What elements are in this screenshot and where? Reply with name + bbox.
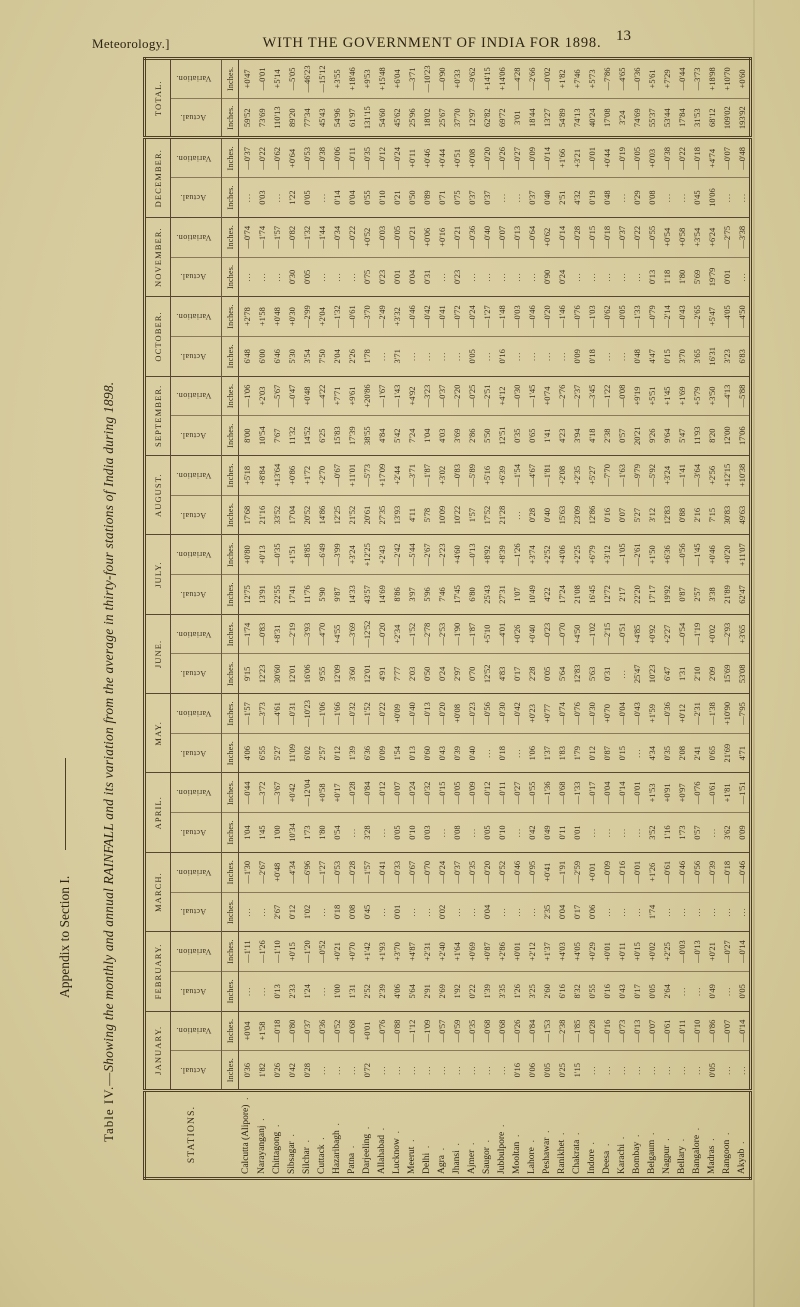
actual-value-cell: 0'05 — [704, 1051, 719, 1091]
variation-value-cell: —0'88 — [389, 1011, 404, 1051]
variation-value-cell: —1'32 — [299, 217, 314, 257]
actual-value-cell: ... — [344, 813, 359, 853]
actual-value-cell: 0'36 — [239, 1051, 255, 1091]
actual-value-cell: 2'28 — [524, 654, 539, 694]
inches-unit-label: Inches. — [222, 733, 239, 773]
inches-unit-label: Inches. — [222, 178, 239, 218]
variation-value-cell: +0'01 — [584, 852, 599, 892]
station-row: Bombay...—0'130'17+0'15...—0'01...—0'01.… — [629, 59, 644, 1179]
actual-value-cell: 20'52 — [299, 495, 314, 535]
actual-value-cell: 8'86 — [389, 575, 404, 615]
actual-value-cell: 17'08 — [599, 98, 614, 138]
actual-value-cell: 15'69 — [719, 654, 734, 694]
actual-value-cell: 0'05 — [464, 336, 479, 376]
variation-value-cell: +15'48 — [374, 59, 389, 99]
actual-value-cell: 0'65 — [704, 733, 719, 773]
actual-value-cell: ... — [599, 813, 614, 853]
actual-value-cell: 74'13 — [569, 98, 584, 138]
actual-value-cell: 0'10 — [374, 178, 389, 218]
variation-value-cell: —4'70 — [314, 614, 329, 654]
station-name: Hazaribagh — [329, 1091, 344, 1179]
variation-value-cell: —7'70 — [599, 456, 614, 496]
station-name-text: Delhi — [422, 1146, 432, 1174]
actual-value-cell: 3'60 — [344, 654, 359, 694]
variation-value-cell: —0'38 — [659, 138, 674, 178]
variation-value-cell: —1'45 — [524, 376, 539, 416]
actual-value-cell: 10'34 — [284, 813, 299, 853]
actual-value-cell: 5'78 — [419, 495, 434, 535]
actual-value-cell: 6'55 — [254, 733, 269, 773]
variation-value-cell: —0'41 — [434, 297, 449, 337]
variation-value-cell: —4'22 — [314, 376, 329, 416]
variation-value-cell: —0'14 — [614, 773, 629, 813]
variation-value-cell: +6'39 — [494, 456, 509, 496]
variation-value-cell: +3'74 — [524, 535, 539, 575]
variation-value-cell: +0'23 — [524, 694, 539, 734]
variation-value-cell: —5'92 — [644, 456, 659, 496]
actual-value-cell: 4'32 — [569, 178, 584, 218]
actual-value-cell: 0'01 — [389, 892, 404, 932]
variation-value-cell: —0'56 — [689, 852, 704, 892]
station-name: Delhi — [419, 1091, 434, 1179]
variation-value-cell: —4'34 — [284, 852, 299, 892]
actual-value-cell: 12'09 — [329, 654, 344, 694]
variation-value-cell: +1'93 — [374, 932, 389, 972]
appendix-side-note-text: Appendix to Section I. — [57, 876, 72, 998]
actual-subheader: Actual. — [171, 495, 222, 535]
actual-subheader: Actual. — [171, 733, 222, 773]
actual-value-cell: 3'71 — [389, 336, 404, 376]
station-name-text: Belgaum — [647, 1133, 657, 1174]
variation-value-cell: —2'66 — [524, 59, 539, 99]
variation-value-cell: —0'46 — [674, 852, 689, 892]
variation-subheader: Variation. — [171, 59, 222, 99]
actual-value-cell: ... — [269, 178, 284, 218]
station-name-text: Chakrata — [572, 1133, 582, 1174]
actual-value-cell: 25'43 — [479, 575, 494, 615]
variation-value-cell: —2'15 — [599, 614, 614, 654]
variation-value-cell: +10'90 — [719, 694, 734, 734]
actual-value-cell: 0'55 — [584, 971, 599, 1011]
actual-value-cell: 89'20 — [284, 98, 299, 138]
station-name: Lahore — [524, 1091, 539, 1179]
variation-value-cell: +0'08 — [464, 138, 479, 178]
variation-value-cell: —0'13 — [509, 217, 524, 257]
actual-value-cell: 5'64 — [554, 654, 569, 694]
actual-value-cell: 0'70 — [464, 654, 479, 694]
actual-value-cell: 0'08 — [344, 892, 359, 932]
actual-value-cell: 9'64 — [659, 416, 674, 456]
actual-value-cell: 3'38 — [704, 575, 719, 615]
rainfall-table: Stations.January.February.March.April.Ma… — [143, 57, 752, 1180]
actual-value-cell: 1'04 — [239, 813, 255, 853]
variation-value-cell: +4'87 — [404, 932, 419, 972]
actual-value-cell: 0'24 — [554, 257, 569, 297]
variation-value-cell: +0'33 — [449, 59, 464, 99]
variation-value-cell: —5'88 — [734, 376, 751, 416]
station-name: Nagpur — [659, 1091, 674, 1179]
variation-value-cell: —0'13 — [689, 932, 704, 972]
actual-value-cell: ... — [719, 971, 734, 1011]
station-row: Bellary...—0'11...—0'03...—0'461'73+0'97… — [674, 59, 689, 1179]
variation-value-cell: —1'32 — [329, 297, 344, 337]
actual-value-cell: 10'09 — [434, 495, 449, 535]
actual-value-cell: ... — [419, 892, 434, 932]
variation-value-cell: —1'26 — [509, 535, 524, 575]
actual-value-cell: 5'50 — [479, 416, 494, 456]
actual-value-cell: 4'18 — [584, 416, 599, 456]
variation-value-cell: —3'73 — [689, 59, 704, 99]
variation-value-cell: —0'43 — [629, 694, 644, 734]
table-title-number: Table IV.— — [101, 1072, 116, 1142]
actual-value-cell: ... — [569, 257, 584, 297]
page-number: 13 — [616, 28, 631, 45]
variation-value-cell: +9'53 — [359, 59, 374, 99]
variation-value-cell: +0'20 — [719, 535, 734, 575]
actual-value-cell: ... — [614, 336, 629, 376]
variation-value-cell: —0'84 — [524, 1011, 539, 1051]
variation-value-cell: +1'37 — [539, 932, 554, 972]
actual-value-cell: ... — [314, 178, 329, 218]
variation-value-cell: —1'90 — [449, 614, 464, 654]
variation-value-cell: +18'98 — [704, 59, 719, 99]
inches-unit-label: Inches. — [222, 456, 239, 496]
actual-value-cell: ... — [419, 336, 434, 376]
variation-value-cell: —0'68 — [479, 1011, 494, 1051]
station-name-text: Jubbulpore — [497, 1125, 507, 1174]
actual-value-cell: 0'16 — [494, 336, 509, 376]
variation-value-cell: —3'38 — [734, 217, 751, 257]
actual-subheader: Actual. — [171, 257, 222, 297]
variation-subheader-label: Variation. — [176, 233, 211, 242]
variation-value-cell: +4'92 — [404, 376, 419, 416]
actual-value-cell: 6'16 — [554, 971, 569, 1011]
actual-value-cell: 12'83 — [569, 654, 584, 694]
table-title: Table IV.—Showing the monthly and annual… — [101, 82, 117, 1142]
variation-value-cell: —0'03 — [374, 217, 389, 257]
actual-value-cell: 2'09 — [704, 654, 719, 694]
actual-value-cell: 19'92 — [659, 575, 674, 615]
station-name: Allahabad — [374, 1091, 389, 1179]
variation-value-cell: —4'65 — [614, 59, 629, 99]
variation-value-cell: —0'61 — [704, 773, 719, 813]
variation-value-cell: +0'69 — [464, 932, 479, 972]
variation-value-cell: +6'24 — [704, 217, 719, 257]
actual-value-cell: 1'45 — [254, 813, 269, 853]
variation-value-cell: —0'03 — [674, 932, 689, 972]
station-row: Cuttack...—0'36...—0'52...—1'271'80+0'58… — [314, 59, 329, 1179]
variation-value-cell: —0'22 — [629, 217, 644, 257]
actual-value-cell: ... — [689, 892, 704, 932]
variation-value-cell: +3'21 — [569, 138, 584, 178]
actual-value-cell: 1'78 — [359, 336, 374, 376]
variation-value-cell: +0'42 — [284, 773, 299, 813]
actual-value-cell: 6'48 — [239, 336, 255, 376]
variation-value-cell: —0'07 — [389, 773, 404, 813]
variation-value-cell: +1'64 — [449, 932, 464, 972]
variation-value-cell: —2'53 — [434, 614, 449, 654]
actual-value-cell: ... — [494, 257, 509, 297]
actual-value-cell: 0'15 — [614, 733, 629, 773]
variation-value-cell: —0'90 — [434, 59, 449, 99]
actual-value-cell: 30'83 — [719, 495, 734, 535]
actual-value-cell: 0'28 — [524, 495, 539, 535]
variation-value-cell: +2'27 — [659, 614, 674, 654]
variation-value-cell: —0'55 — [524, 773, 539, 813]
station-row: Lucknow...—0'884'06+3'700'01—0'330'05—0'… — [389, 59, 404, 1179]
variation-value-cell: —0'37 — [239, 138, 255, 178]
actual-value-cell: 0'11 — [554, 813, 569, 853]
actual-value-cell: ... — [314, 892, 329, 932]
variation-value-cell: —1'67 — [374, 376, 389, 416]
variation-value-cell: +0'15 — [629, 932, 644, 972]
variation-value-cell: —0'47 — [284, 376, 299, 416]
actual-value-cell: 0'87 — [674, 575, 689, 615]
actual-value-cell: 0'13 — [404, 733, 419, 773]
actual-value-cell: ... — [464, 1051, 479, 1091]
variation-value-cell: —0'46 — [404, 297, 419, 337]
actual-value-cell: 1'15 — [569, 1051, 584, 1091]
variation-value-cell: —2'59 — [569, 852, 584, 892]
variation-value-cell: —0'53 — [329, 852, 344, 892]
variation-value-cell: —12'52 — [359, 614, 374, 654]
actual-value-cell: 1'31 — [674, 654, 689, 694]
actual-subheader-label: Actual. — [180, 352, 206, 361]
variation-value-cell: —0'30 — [584, 694, 599, 734]
actual-value-cell: 16'06 — [299, 654, 314, 694]
actual-value-cell: 0'07 — [614, 495, 629, 535]
variation-value-cell: —0'52 — [314, 932, 329, 972]
actual-value-cell: ... — [239, 257, 255, 297]
actual-value-cell: 4'06 — [389, 971, 404, 1011]
actual-value-cell: 4'71 — [734, 733, 751, 773]
station-name: Narayanganj — [254, 1091, 269, 1179]
actual-value-cell: 19'79 — [704, 257, 719, 297]
variation-value-cell: —0'67 — [404, 852, 419, 892]
station-row: Sibsagar0'42—0'802'33+0'150'12—4'3410'34… — [284, 59, 299, 1179]
station-name: Cuttack — [314, 1091, 329, 1179]
actual-value-cell: 3'12 — [644, 495, 659, 535]
actual-value-cell: 33'52 — [269, 495, 284, 535]
actual-value-cell: 74'69 — [629, 98, 644, 138]
actual-value-cell: 25'96 — [404, 98, 419, 138]
variation-value-cell: +2'86 — [494, 932, 509, 972]
actual-value-cell: 0'17 — [509, 654, 524, 694]
variation-value-cell: +0'41 — [539, 852, 554, 892]
actual-value-cell: ... — [329, 1051, 344, 1091]
actual-value-cell: 2'86 — [464, 416, 479, 456]
actual-value-cell: 5'27 — [269, 733, 284, 773]
variation-value-cell: —0'07 — [494, 217, 509, 257]
station-name: Chakrata — [569, 1091, 584, 1179]
inches-unit-label: Inches. — [222, 813, 239, 853]
variation-value-cell: —0'44 — [239, 773, 255, 813]
actual-value-cell: ... — [434, 813, 449, 853]
variation-value-cell: —4'67 — [524, 456, 539, 496]
actual-value-cell: 2'03 — [404, 654, 419, 694]
variation-value-cell: +5'73 — [584, 59, 599, 99]
variation-value-cell: —0'21 — [449, 217, 464, 257]
actual-value-cell: 3'97 — [404, 575, 419, 615]
actual-value-cell: 6'83 — [734, 336, 751, 376]
station-name-text: Nagpur — [662, 1138, 672, 1174]
variation-value-cell: —1'91 — [554, 852, 569, 892]
actual-value-cell: 0'12 — [284, 892, 299, 932]
actual-value-cell: 0'48 — [599, 178, 614, 218]
actual-value-cell: 8'00 — [239, 416, 255, 456]
actual-value-cell: 14'86 — [314, 495, 329, 535]
variation-value-cell: —1'57 — [239, 694, 255, 734]
actual-value-cell: ... — [434, 1051, 449, 1091]
variation-subheader-label: Variation. — [176, 709, 211, 718]
variation-value-cell: +0'11 — [614, 932, 629, 972]
variation-value-cell: —1'11 — [239, 932, 255, 972]
variation-value-cell: —0'22 — [344, 217, 359, 257]
actual-value-cell: 0'50 — [404, 178, 419, 218]
actual-value-cell: 1'00 — [269, 813, 284, 853]
actual-value-cell: 4'47 — [644, 336, 659, 376]
inches-unit-label: Inches. — [222, 138, 239, 178]
variation-value-cell: +11'07 — [734, 535, 751, 575]
actual-value-cell: 17'39 — [344, 416, 359, 456]
actual-value-cell: 0'05 — [734, 971, 751, 1011]
actual-value-cell: 0'49 — [539, 813, 554, 853]
station-row: Ajmer...—0'350'22+0'69...—0'35...—0'090'… — [464, 59, 479, 1179]
actual-value-cell: ... — [629, 1051, 644, 1091]
inches-unit-label: Inches. — [222, 297, 239, 337]
actual-value-cell: 0'42 — [284, 1051, 299, 1091]
actual-subheader-label: Actual. — [180, 511, 206, 520]
station-name-text: Akyab — [737, 1142, 747, 1174]
variation-value-cell: —0'62 — [599, 297, 614, 337]
variation-value-cell: —0'46 — [524, 297, 539, 337]
actual-subheader: Actual. — [171, 98, 222, 138]
variation-subheader: Variation. — [171, 456, 222, 496]
actual-value-cell: 0'09 — [734, 813, 751, 853]
variation-value-cell: —0'07 — [644, 1011, 659, 1051]
actual-value-cell: 12'23 — [254, 654, 269, 694]
actual-value-cell: 2'91 — [419, 971, 434, 1011]
actual-value-cell: 2'16 — [689, 495, 704, 535]
variation-value-cell: +7'46 — [569, 59, 584, 99]
actual-value-cell: 1'18 — [659, 257, 674, 297]
actual-value-cell: 17'04 — [284, 495, 299, 535]
variation-value-cell: +3'12 — [599, 535, 614, 575]
variation-value-cell: —0'36 — [659, 694, 674, 734]
variation-value-cell: —0'19 — [614, 138, 629, 178]
actual-value-cell: 110'13 — [269, 98, 284, 138]
actual-value-cell: ... — [254, 971, 269, 1011]
variation-value-cell: —1'81 — [539, 456, 554, 496]
variation-value-cell: —2'67 — [419, 535, 434, 575]
variation-subheader: Variation. — [171, 932, 222, 972]
variation-value-cell: —0'73 — [614, 1011, 629, 1051]
variation-value-cell: —0'23 — [539, 614, 554, 654]
actual-value-cell: 17'52 — [479, 495, 494, 535]
actual-value-cell: ... — [659, 1051, 674, 1091]
station-row: Calcutta (Alipore)0'36+0'04...—1'11...—1… — [239, 59, 255, 1179]
actual-value-cell: 0'06 — [524, 1051, 539, 1091]
actual-value-cell: 0'40 — [539, 495, 554, 535]
actual-value-cell: 0'12 — [584, 733, 599, 773]
variation-value-cell: +12'15 — [719, 456, 734, 496]
variation-value-cell: +0'70 — [599, 694, 614, 734]
actual-value-cell: 4'91 — [374, 654, 389, 694]
variation-value-cell: —1'57 — [269, 217, 284, 257]
variation-value-cell: +5'79 — [689, 376, 704, 416]
variation-value-cell: —0'01 — [254, 59, 269, 99]
variation-subheader: Variation. — [171, 614, 222, 654]
variation-value-cell: —0'14 — [539, 138, 554, 178]
station-row: Rangoon...—0'07...—0'27...—0'183'62+1'81… — [719, 59, 734, 1179]
variation-value-cell: —0'24 — [434, 852, 449, 892]
actual-value-cell: 43'57 — [359, 575, 374, 615]
actual-value-cell: ... — [614, 813, 629, 853]
variation-value-cell: —2'37 — [569, 376, 584, 416]
variation-value-cell: —0'20 — [539, 297, 554, 337]
variation-value-cell: +0'44 — [599, 138, 614, 178]
variation-value-cell: —1'85 — [569, 1011, 584, 1051]
variation-value-cell: +3'65 — [734, 614, 751, 654]
variation-value-cell: —0'13 — [464, 535, 479, 575]
variation-value-cell: —0'46 — [509, 852, 524, 892]
month-header-february: February. — [145, 932, 171, 1011]
variation-value-cell: —0'12 — [374, 773, 389, 813]
variation-subheader: Variation. — [171, 535, 222, 575]
actual-value-cell: ... — [599, 336, 614, 376]
variation-value-cell: —46'23 — [299, 59, 314, 99]
actual-subheader: Actual. — [171, 575, 222, 615]
variation-subheader: Variation. — [171, 694, 222, 734]
variation-value-cell: —4'61 — [269, 694, 284, 734]
variation-value-cell: —3'71 — [404, 456, 419, 496]
actual-value-cell: 10'22 — [449, 495, 464, 535]
variation-value-cell: —10'23 — [299, 694, 314, 734]
month-header-april: April. — [145, 773, 171, 852]
variation-value-cell: —0'38 — [314, 138, 329, 178]
actual-value-cell: 31'53 — [689, 98, 704, 138]
variation-value-cell: —1'22 — [599, 376, 614, 416]
variation-value-cell: —1'44 — [314, 217, 329, 257]
variation-value-cell: —9'79 — [629, 456, 644, 496]
actual-value-cell: 59'52 — [239, 98, 255, 138]
variation-value-cell: —3'67 — [269, 773, 284, 813]
variation-value-cell: —0'28 — [344, 852, 359, 892]
inches-unit-label: Inches. — [222, 376, 239, 416]
actual-value-cell: 0'01 — [569, 813, 584, 853]
actual-value-cell: 0'37 — [479, 178, 494, 218]
variation-value-cell: —1'19 — [689, 614, 704, 654]
actual-value-cell: 7'77 — [389, 654, 404, 694]
month-header-november: November. — [145, 217, 171, 296]
actual-value-cell: ... — [614, 892, 629, 932]
variation-value-cell: —0'80 — [284, 1011, 299, 1051]
actual-value-cell: ... — [734, 178, 751, 218]
actual-value-cell: 3'62 — [719, 813, 734, 853]
actual-value-cell: 0'04 — [479, 892, 494, 932]
month-header-october: October. — [145, 297, 171, 376]
variation-value-cell: —0'06 — [329, 138, 344, 178]
variation-value-cell: —3'71 — [404, 59, 419, 99]
variation-value-cell: +2'04 — [314, 297, 329, 337]
actual-value-cell: 0'49 — [704, 971, 719, 1011]
actual-value-cell: ... — [254, 257, 269, 297]
variation-value-cell: +1'66 — [554, 138, 569, 178]
running-header-title: WITH THE GOVERNMENT OF INDIA FOR 1898. — [230, 35, 634, 52]
actual-value-cell: 14'33 — [344, 575, 359, 615]
variation-value-cell: +3'70 — [389, 932, 404, 972]
variation-value-cell: —0'57 — [434, 1011, 449, 1051]
